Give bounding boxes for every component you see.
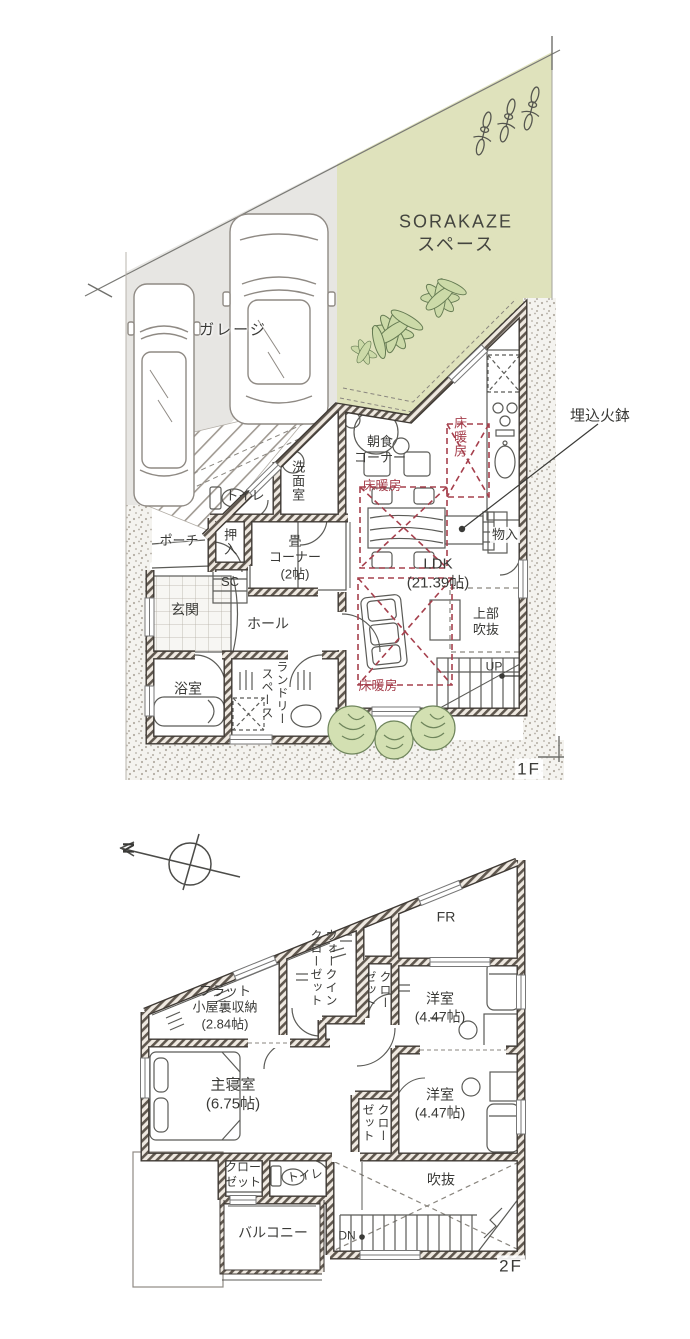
floorplan-page: ガレージ SORAKAZE スペース 埋込火鉢 朝食 コーナー 床暖房 床暖房 … (0, 0, 690, 1339)
house-2f (120, 834, 526, 1287)
floorplan-graphic (0, 0, 690, 1339)
dn-marker (359, 1234, 365, 1240)
car-sedan (223, 214, 335, 424)
compass (120, 834, 240, 890)
roof-below-outline (133, 1152, 223, 1287)
openings-2f (248, 1038, 506, 1162)
car-van (128, 284, 200, 506)
